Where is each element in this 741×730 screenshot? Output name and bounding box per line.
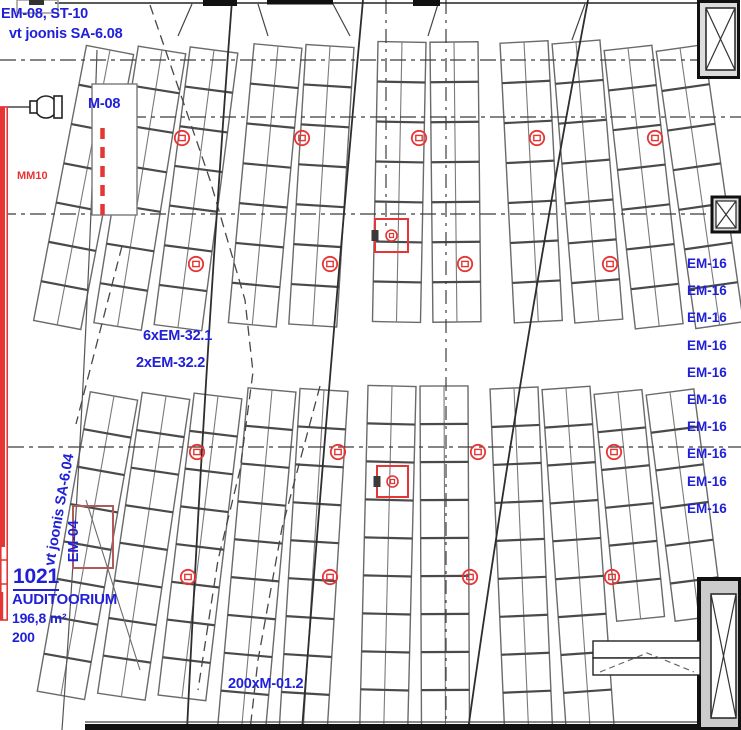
seat-row-line <box>503 691 551 693</box>
seat-row-line <box>291 284 339 287</box>
radial-tick-1 <box>178 4 192 36</box>
seat-row-line <box>504 121 552 123</box>
seat-ladder-divider <box>524 42 538 322</box>
marker-inner-glyph <box>194 449 200 454</box>
marker-outer-circle <box>603 257 617 271</box>
marker-inner-glyph <box>475 449 481 454</box>
top-wall-thick-2 <box>267 0 333 5</box>
label-em16: EM-16 <box>687 392 741 407</box>
marker-inner-glyph <box>327 261 333 266</box>
seat-row-line <box>296 204 344 207</box>
seat-row-line <box>376 122 424 123</box>
box-marker-circle <box>386 230 397 241</box>
label-200xm012: 200xM-01.2 <box>228 677 303 692</box>
label-mm10: MM10 <box>17 170 48 182</box>
red-wall-strip-fill <box>0 107 5 547</box>
m08-device-body <box>54 96 62 118</box>
seat-ladder-divider <box>313 46 330 325</box>
seat-row-line <box>432 242 480 243</box>
seat-row-line <box>367 423 415 424</box>
room-name: AUDITOORIUM <box>12 592 117 608</box>
seat-ladder-divider <box>444 386 445 728</box>
box-marker-circle <box>387 476 398 487</box>
seat-ladder-divider <box>252 46 278 325</box>
label-em16: EM-16 <box>687 338 741 353</box>
marker-inner-glyph <box>607 261 613 266</box>
label-6xem321: 6xEM-32.1 <box>143 329 212 344</box>
label-em16: EM-16 <box>687 501 741 516</box>
speaker-circle-marker <box>181 570 195 584</box>
speaker-circle-marker <box>471 445 485 459</box>
seat-ladder <box>158 393 242 701</box>
speaker-circle-marker <box>189 257 203 271</box>
seat-ladder <box>430 42 481 322</box>
beam-lower <box>593 658 700 675</box>
seat-row-line <box>363 613 411 614</box>
speaker-circle-marker <box>603 257 617 271</box>
marker-inner-glyph <box>611 449 617 454</box>
label-em16: EM-16 <box>687 419 741 434</box>
speaker-circle-marker <box>648 131 662 145</box>
marker-outer-circle <box>175 131 189 145</box>
marker-inner-glyph <box>327 574 333 579</box>
seat-ladder <box>360 385 416 728</box>
seat-row-line <box>376 162 424 163</box>
seat-ladder-divider <box>396 42 402 322</box>
seat-row-line <box>364 537 412 538</box>
sightline-dashed-1 <box>150 5 253 690</box>
room-area: 196,8 m² <box>12 611 66 626</box>
ceiling-box-marker <box>374 466 409 497</box>
marker-outer-circle <box>648 131 662 145</box>
seat-row-line <box>298 426 346 429</box>
label-em04: EM-04 <box>67 521 82 563</box>
seat-row-line <box>377 82 425 83</box>
top-left-wall-piece <box>29 0 44 5</box>
seat-row-line <box>496 539 544 541</box>
seat-row-line <box>501 653 549 655</box>
marker-outer-circle <box>323 570 337 584</box>
marker-inner-glyph <box>416 135 422 140</box>
seat-row-line <box>374 241 422 242</box>
seat-row-line <box>301 124 349 127</box>
seat-ladder-divider <box>566 388 590 729</box>
speaker-circle-marker <box>323 257 337 271</box>
bottom-wall-thick <box>85 724 741 730</box>
seat-row-line <box>506 161 554 163</box>
seat-ladder <box>604 45 683 329</box>
seat-ladder <box>372 42 426 323</box>
seat-row-line <box>299 164 347 167</box>
label-em16: EM-16 <box>687 365 741 380</box>
seat-ladder <box>420 386 469 728</box>
seat-row-line <box>294 244 342 247</box>
marker-outer-circle <box>530 131 544 145</box>
seat-row-line <box>430 82 478 83</box>
label-vt-joonis-sa608: vt joonis SA-6.08 <box>9 27 122 42</box>
speaker-circle-marker <box>175 131 189 145</box>
seat-row-line <box>366 461 414 462</box>
room-capacity: 200 <box>12 630 35 645</box>
seat-row-line <box>365 499 413 500</box>
seat-ladder <box>500 41 562 323</box>
seat-ladder <box>552 40 623 323</box>
marker-outer-circle <box>323 257 337 271</box>
radial-tick-3 <box>333 4 350 36</box>
seat-ladder-divider <box>628 48 659 326</box>
label-2xem322: 2xEM-32.2 <box>136 356 205 371</box>
speaker-circle-marker <box>295 131 309 145</box>
seat-row-line <box>49 242 96 251</box>
marker-outer-circle <box>471 445 485 459</box>
seat-row-line <box>431 122 479 123</box>
seat-ladder-divider <box>514 388 529 730</box>
marker-inner-glyph <box>335 449 341 454</box>
radial-tick-4 <box>428 4 438 36</box>
label-em16: EM-16 <box>687 256 741 271</box>
seat-row-line <box>304 84 352 87</box>
m08-device-back <box>30 101 37 113</box>
speaker-circle-marker <box>458 257 472 271</box>
seat-row-line <box>433 282 481 283</box>
marker-outer-circle <box>181 570 195 584</box>
radial-tick-2 <box>258 4 268 36</box>
speaker-circle-marker <box>530 131 544 145</box>
marker-outer-circle <box>189 257 203 271</box>
label-em16: EM-16 <box>687 474 741 489</box>
seat-row-line <box>500 615 548 617</box>
seat-ladder <box>542 386 614 730</box>
seat-ladder <box>490 387 553 730</box>
label-m08: M-08 <box>88 97 120 112</box>
seat-row-line <box>431 162 479 163</box>
seat-row-line <box>432 202 480 203</box>
seat-row-line <box>502 81 550 83</box>
aisle-line-2 <box>302 0 363 730</box>
seat-row-line <box>498 577 546 579</box>
seat-row-line <box>508 201 556 203</box>
speaker-circle-marker <box>323 570 337 584</box>
label-em16: EM-16 <box>687 446 741 461</box>
box-marker-inner-square <box>391 480 395 484</box>
seat-row-line <box>295 464 343 467</box>
seat-row-line <box>512 280 560 282</box>
seat-row-line <box>362 651 410 652</box>
cad-floorplan-screenshot: { "annotations": { "top_left_line1": "EM… <box>0 0 741 730</box>
marker-inner-glyph <box>534 135 540 140</box>
box-marker-junction <box>374 476 381 487</box>
seat-row-line <box>363 575 411 576</box>
room-number: 1021 <box>13 566 59 591</box>
marker-outer-circle <box>295 131 309 145</box>
label-em16: EM-16 <box>687 310 741 325</box>
seating-area <box>34 40 741 730</box>
seat-row-line <box>361 689 409 690</box>
seat-row-line <box>41 281 88 290</box>
seat-row-line <box>375 201 423 202</box>
marker-inner-glyph <box>179 135 185 140</box>
seat-row-line <box>291 540 339 543</box>
seat-row-line <box>510 241 558 243</box>
marker-inner-glyph <box>193 261 199 266</box>
seat-ladder-divider <box>178 50 214 328</box>
seat-row-line <box>492 425 540 427</box>
red-strip-fill-low <box>0 592 3 620</box>
label-em08-st10: EM-08, ST-10 <box>1 7 88 22</box>
top-wall-thick-1 <box>203 0 237 6</box>
top-wall-thick-3 <box>413 0 440 6</box>
seat-ladder-divider <box>454 42 457 322</box>
seat-row-line <box>373 281 421 282</box>
box-marker-outline <box>377 466 408 497</box>
label-em16: EM-16 <box>687 283 741 298</box>
marker-outer-circle <box>458 257 472 271</box>
seat-ladder-divider <box>384 386 392 728</box>
seat-row-line <box>493 463 541 465</box>
box-marker-junction <box>372 230 379 241</box>
marker-inner-glyph <box>652 135 658 140</box>
box-marker-outline <box>375 219 408 252</box>
beam-upper <box>593 641 700 658</box>
marker-inner-glyph <box>462 261 468 266</box>
box-marker-inner-square <box>390 234 394 238</box>
seat-row-line <box>293 502 341 505</box>
seat-ladder-divider <box>576 42 599 321</box>
ceiling-box-marker <box>372 219 409 252</box>
marker-inner-glyph <box>185 574 191 579</box>
